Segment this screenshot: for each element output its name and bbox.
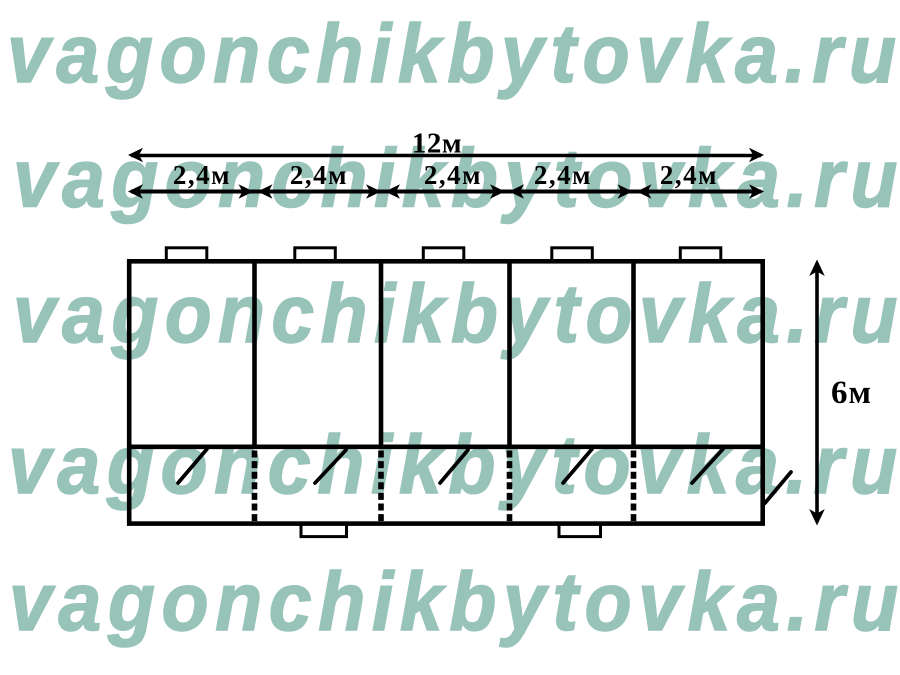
svg-text:vagonchikbytovka.ru: vagonchikbytovka.ru — [13, 267, 900, 359]
svg-text:6м: 6м — [831, 375, 872, 411]
svg-text:vagonchikbytovka.ru: vagonchikbytovka.ru — [9, 554, 900, 647]
svg-text:vagonchikbytovka.ru: vagonchikbytovka.ru — [8, 417, 900, 510]
svg-text:vagonchikbytovka.ru: vagonchikbytovka.ru — [13, 132, 900, 224]
svg-text:vagonchikbytovka.ru: vagonchikbytovka.ru — [7, 6, 900, 99]
